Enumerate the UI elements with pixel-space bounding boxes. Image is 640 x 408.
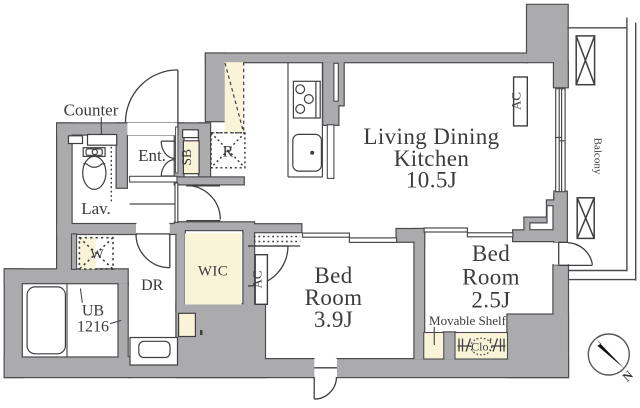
svg-text:Counter: Counter — [64, 101, 119, 120]
svg-text:W: W — [90, 248, 104, 263]
svg-text:Room: Room — [462, 264, 520, 289]
svg-text:DR: DR — [141, 277, 164, 294]
svg-text:1216: 1216 — [77, 319, 109, 336]
svg-text:AC: AC — [509, 92, 524, 110]
svg-text:Bed: Bed — [472, 241, 510, 266]
svg-text:Lav.: Lav. — [81, 199, 111, 218]
svg-text:WIC: WIC — [198, 264, 228, 280]
svg-text:3.9J: 3.9J — [314, 307, 353, 332]
svg-text:Ent.: Ent. — [138, 146, 166, 165]
svg-text:10.5J: 10.5J — [406, 168, 457, 193]
svg-text:2.5J: 2.5J — [471, 287, 510, 312]
svg-text:Clo.: Clo. — [471, 340, 491, 354]
svg-text:Balcony: Balcony — [592, 138, 604, 175]
svg-text:SB: SB — [179, 149, 194, 166]
svg-text:AC: AC — [250, 270, 265, 288]
svg-text:R: R — [223, 144, 234, 161]
svg-text:UB: UB — [82, 303, 104, 320]
svg-text:Movable Shelf: Movable Shelf — [429, 313, 507, 328]
